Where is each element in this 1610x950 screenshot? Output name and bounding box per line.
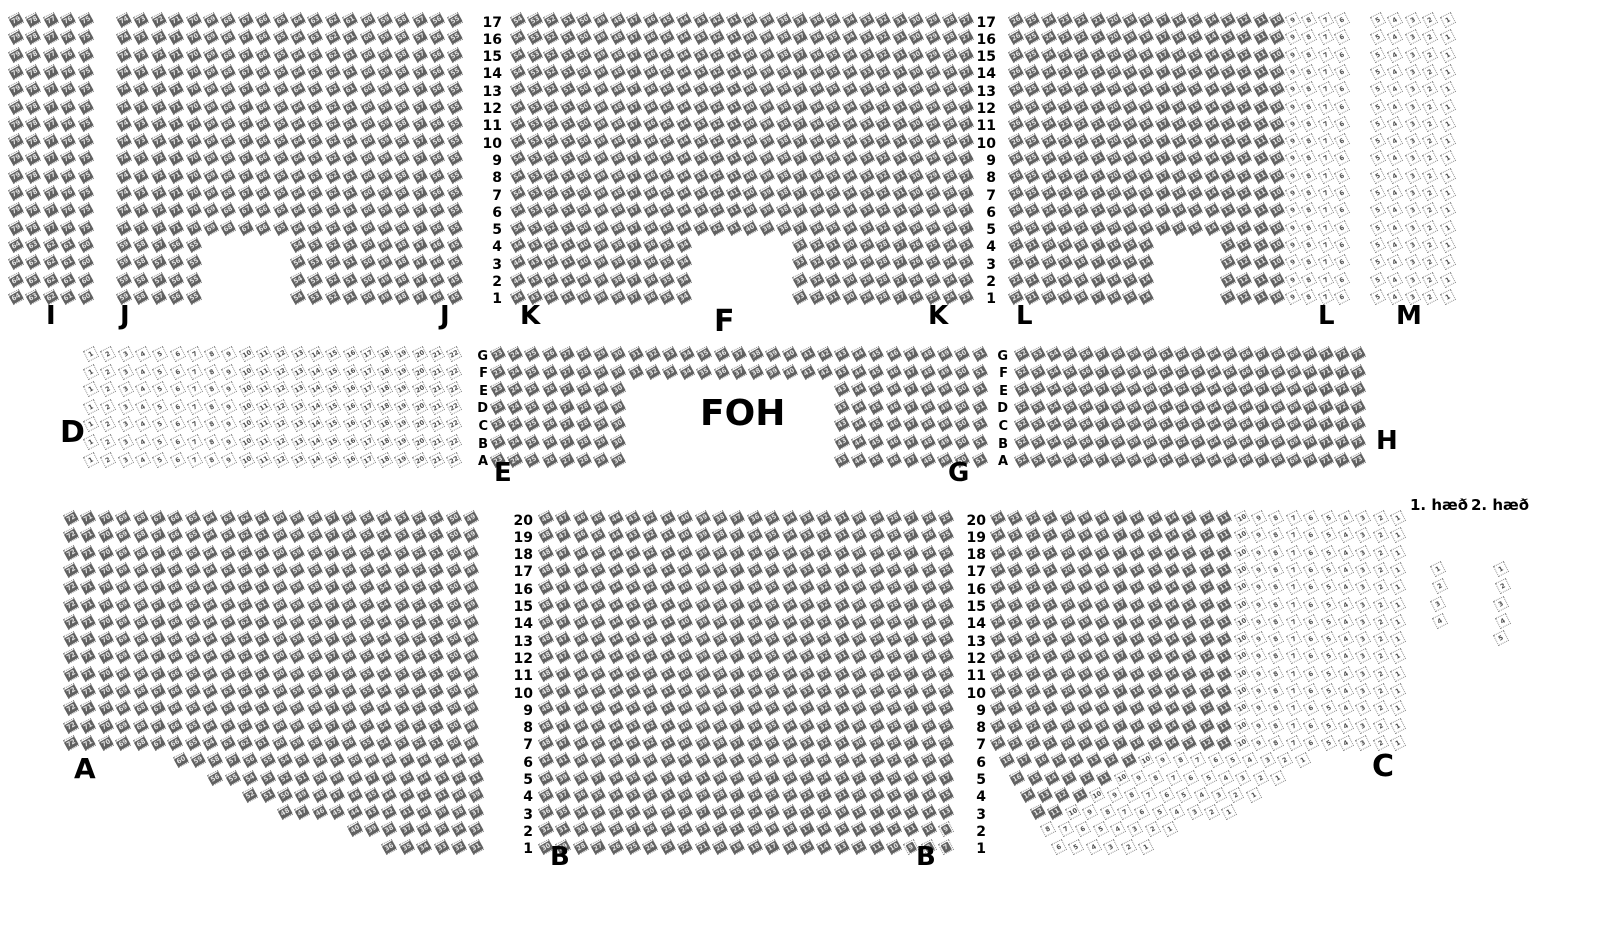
seat-EG[interactable]: 26 (542, 399, 558, 415)
seat-B[interactable]: 31 (834, 614, 850, 630)
seat-K[interactable]: 38 (776, 64, 792, 80)
seat-C[interactable]: 10 (1234, 666, 1250, 682)
seat-B[interactable]: 28 (886, 545, 902, 561)
seat-A[interactable]: 50 (446, 648, 462, 664)
seat-J[interactable]: 67 (238, 98, 254, 114)
seat-B[interactable]: 25 (938, 527, 954, 543)
seat-D[interactable]: 2 (100, 346, 116, 362)
seat-K[interactable]: 33 (859, 64, 875, 80)
seat-B[interactable]: 45 (590, 718, 606, 734)
seat-H[interactable]: 70 (1302, 346, 1318, 362)
seat-L[interactable]: 25 (1024, 150, 1040, 166)
seat-J[interactable]: 66 (255, 185, 271, 201)
seat-K[interactable]: 31 (892, 168, 908, 184)
seat-EG[interactable]: 43 (834, 364, 850, 380)
seat-B[interactable]: 45 (590, 527, 606, 543)
seat-H[interactable]: 65 (1222, 452, 1238, 468)
seat-C[interactable]: 2 (1204, 804, 1220, 820)
seat-C[interactable]: 10 (1234, 596, 1250, 612)
seat-I[interactable]: 78 (25, 12, 41, 28)
seat-B[interactable]: 40 (677, 545, 693, 561)
seat-B[interactable]: 41 (660, 527, 676, 543)
seat-I[interactable]: 78 (25, 185, 41, 201)
seat-B[interactable]: 35 (764, 666, 780, 682)
seat-C[interactable]: 17 (1112, 666, 1128, 682)
seat-K[interactable]: 52 (543, 220, 559, 236)
seat-D[interactable]: 19 (394, 381, 410, 397)
seat-A[interactable]: 36 (381, 839, 397, 855)
seat-H[interactable]: 66 (1238, 399, 1254, 415)
seat-A[interactable]: 40 (347, 821, 363, 837)
seat-D[interactable]: 8 (204, 399, 220, 415)
seat-H[interactable]: 67 (1254, 381, 1270, 397)
seat-J[interactable]: 69 (203, 220, 219, 236)
seat-C[interactable]: 3 (1355, 735, 1371, 751)
seat-C[interactable]: 7 (1286, 527, 1302, 543)
seat-A[interactable]: 64 (202, 700, 218, 716)
seat-M[interactable]: 2 (1422, 12, 1438, 28)
seat-C[interactable]: 24 (990, 718, 1006, 734)
seat-K[interactable]: 47 (626, 81, 642, 97)
seat-J[interactable]: 66 (255, 47, 271, 63)
seat-K[interactable]: 50 (576, 47, 592, 63)
seat-L[interactable]: 15 (1187, 98, 1203, 114)
seat-L[interactable]: 21 (1089, 116, 1105, 132)
seat-L[interactable]: 24 (1041, 185, 1057, 201)
seat-I[interactable]: 77 (43, 150, 59, 166)
seat-A[interactable]: 52 (411, 527, 427, 543)
seat-M[interactable]: 5 (1370, 98, 1386, 114)
seat-A[interactable]: 56 (207, 769, 223, 785)
seat-EG[interactable]: 24 (507, 364, 523, 380)
seat-L[interactable]: 10 (1269, 29, 1285, 45)
seat-A[interactable]: 46 (416, 752, 432, 768)
seat-B[interactable]: 31 (695, 769, 711, 785)
seat-I[interactable]: 77 (43, 220, 59, 236)
seat-D[interactable]: 12 (273, 452, 289, 468)
seat-D[interactable]: 1 (83, 381, 99, 397)
seat-A[interactable]: 58 (307, 718, 323, 734)
seat-C[interactable]: 19 (1077, 510, 1093, 526)
seat-L[interactable]: 8 (1301, 168, 1317, 184)
seat-B[interactable]: 25 (729, 804, 745, 820)
seat-B[interactable]: 24 (851, 752, 867, 768)
seat-B[interactable]: 33 (799, 631, 815, 647)
seat-A[interactable]: 50 (446, 735, 462, 751)
seat-A[interactable]: 49 (463, 718, 479, 734)
seat-B[interactable]: 29 (869, 510, 885, 526)
seat-K[interactable]: 36 (809, 116, 825, 132)
seat-B[interactable]: 37 (729, 527, 745, 543)
seat-I[interactable]: 60 (78, 237, 94, 253)
seat-H[interactable]: 55 (1062, 364, 1078, 380)
seat-B[interactable]: 29 (869, 545, 885, 561)
seat-C[interactable]: 8 (1268, 562, 1284, 578)
seat-B[interactable]: 16 (782, 839, 798, 855)
seat-A[interactable]: 70 (98, 545, 114, 561)
seat-C[interactable]: 10 (1234, 631, 1250, 647)
seat-EG[interactable]: 29 (593, 434, 609, 450)
seat-C[interactable]: 20 (1060, 545, 1076, 561)
seat-A[interactable]: 52 (411, 666, 427, 682)
seat-A[interactable]: 62 (237, 614, 253, 630)
seat-C[interactable]: 17 (1112, 631, 1128, 647)
seat-C[interactable]: 6 (1303, 683, 1319, 699)
seat-L[interactable]: 13 (1220, 12, 1236, 28)
seat-H[interactable]: 52 (1014, 399, 1030, 415)
seat-K[interactable]: 38 (776, 202, 792, 218)
seat-L[interactable]: 25 (1024, 116, 1040, 132)
seat-C[interactable]: 24 (990, 527, 1006, 543)
seat-B[interactable]: 44 (608, 510, 624, 526)
seat-C[interactable]: 3 (1260, 752, 1276, 768)
seat-D[interactable]: 18 (377, 346, 393, 362)
seat-A[interactable]: 52 (312, 752, 328, 768)
seat-A[interactable]: 50 (446, 527, 462, 543)
seat-B[interactable]: 32 (816, 510, 832, 526)
seat-C[interactable]: 22 (1025, 648, 1041, 664)
seat-B[interactable]: 40 (573, 752, 589, 768)
seat-C[interactable]: 16 (1009, 769, 1025, 785)
seat-B[interactable]: 32 (642, 787, 658, 803)
seat-J[interactable]: 56 (168, 271, 184, 287)
seat-A[interactable]: 62 (237, 648, 253, 664)
seat-K[interactable]: 31 (892, 47, 908, 63)
seat-H[interactable]: 53 (1030, 346, 1046, 362)
seat-C[interactable]: 15 (1051, 752, 1067, 768)
seat-J[interactable]: 59 (377, 168, 393, 184)
seat-B[interactable]: 25 (938, 666, 954, 682)
seat-J[interactable]: 62 (325, 12, 341, 28)
seat-J[interactable]: 69 (203, 202, 219, 218)
seat-A[interactable]: 54 (376, 683, 392, 699)
seat-B[interactable]: 47 (555, 666, 571, 682)
seat-K[interactable]: 36 (643, 237, 659, 253)
seat-B[interactable]: 26 (921, 631, 937, 647)
seat-C[interactable]: 12 (1199, 666, 1215, 682)
seat-B[interactable]: 35 (764, 648, 780, 664)
seat-H[interactable]: 55 (1062, 434, 1078, 450)
seat-L[interactable]: 23 (1057, 168, 1073, 184)
seat-B[interactable]: 29 (869, 579, 885, 595)
seat-A[interactable]: 62 (237, 527, 253, 543)
seat-C[interactable]: 22 (1025, 596, 1041, 612)
seat-C[interactable]: 15 (1147, 718, 1163, 734)
seat-L[interactable]: 16 (1171, 81, 1187, 97)
seat-K[interactable]: 30 (908, 116, 924, 132)
seat-L[interactable]: 11 (1252, 64, 1268, 80)
seat-J[interactable]: 74 (116, 150, 132, 166)
seat-H[interactable]: 64 (1206, 399, 1222, 415)
seat-I[interactable]: 60 (78, 289, 94, 305)
seat-C[interactable]: 8 (1148, 769, 1164, 785)
seat-A[interactable]: 53 (294, 752, 310, 768)
seat-C[interactable]: 3 (1355, 527, 1371, 543)
seat-K[interactable]: 42 (543, 271, 559, 287)
seat-B[interactable]: 48 (538, 614, 554, 630)
seat-B[interactable]: 46 (573, 631, 589, 647)
seat-A[interactable]: 67 (150, 614, 166, 630)
seat-EG[interactable]: 36 (714, 364, 730, 380)
seat-B[interactable]: 31 (834, 596, 850, 612)
seat-J[interactable]: 49 (377, 289, 393, 305)
seat-K[interactable]: 33 (859, 185, 875, 201)
seat-C[interactable]: 3 (1355, 631, 1371, 647)
seat-D[interactable]: 17 (360, 364, 376, 380)
seat-K[interactable]: 39 (759, 64, 775, 80)
seat-EG[interactable]: 27 (559, 381, 575, 397)
seat-A[interactable]: 56 (341, 666, 357, 682)
seat-A[interactable]: 59 (289, 510, 305, 526)
seat-K[interactable]: 49 (593, 81, 609, 97)
seat-K[interactable]: 26 (908, 254, 924, 270)
seat-L[interactable]: 17 (1089, 254, 1105, 270)
seat-D[interactable]: 20 (412, 381, 428, 397)
seat-J[interactable]: 61 (342, 150, 358, 166)
seat-B[interactable]: 30 (677, 787, 693, 803)
seat-B[interactable]: 25 (938, 735, 954, 751)
seat-B[interactable]: 34 (782, 700, 798, 716)
seat-K[interactable]: 40 (742, 29, 758, 45)
seat-EG[interactable]: 44 (851, 434, 867, 450)
seat-H[interactable]: 69 (1286, 399, 1302, 415)
seat-B[interactable]: 34 (782, 735, 798, 751)
seat-H[interactable]: 73 (1350, 399, 1366, 415)
seat-B[interactable]: 36 (747, 579, 763, 595)
seat-B[interactable]: 39 (695, 596, 711, 612)
seat-H[interactable]: 57 (1094, 416, 1110, 432)
seat-B[interactable]: 21 (903, 752, 919, 768)
seat-A[interactable]: 62 (237, 683, 253, 699)
seat-L[interactable]: 9 (1285, 12, 1301, 28)
seat-A[interactable]: 56 (341, 545, 357, 561)
seat-I[interactable]: 61 (60, 271, 76, 287)
seat-C[interactable]: 5 (1321, 718, 1337, 734)
seat-C[interactable]: 4 (1338, 562, 1354, 578)
seat-B[interactable]: 39 (695, 510, 711, 526)
seat-A[interactable]: 53 (394, 700, 410, 716)
seat-B[interactable]: 32 (816, 648, 832, 664)
seat-L[interactable]: 25 (1024, 29, 1040, 45)
seat-C[interactable]: 18 (1094, 614, 1110, 630)
seat-D[interactable]: 16 (342, 381, 358, 397)
seat-C[interactable]: 1 (1390, 700, 1406, 716)
seat-D[interactable]: 5 (152, 346, 168, 362)
seat-C[interactable]: 2 (1373, 562, 1389, 578)
seat-EG[interactable]: 45 (868, 364, 884, 380)
seat-K[interactable]: 43 (693, 168, 709, 184)
seat-K[interactable]: 51 (560, 202, 576, 218)
seat-EG[interactable]: 25 (524, 346, 540, 362)
seat-J[interactable]: 59 (116, 254, 132, 270)
seat-A[interactable]: 68 (133, 614, 149, 630)
seat-J[interactable]: 45 (447, 271, 463, 287)
seat-A[interactable]: 72 (63, 631, 79, 647)
seat-EG[interactable]: 44 (851, 416, 867, 432)
seat-C[interactable]: 2 (1145, 821, 1161, 837)
seat-L[interactable]: 8 (1301, 220, 1317, 236)
seat-A[interactable]: 54 (376, 631, 392, 647)
seat-L[interactable]: 8 (1301, 81, 1317, 97)
seat-B[interactable]: 39 (695, 735, 711, 751)
seat-K[interactable]: 31 (892, 81, 908, 97)
seat-K[interactable]: 50 (576, 98, 592, 114)
seat-I[interactable]: 78 (25, 220, 41, 236)
seat-L[interactable]: 20 (1041, 254, 1057, 270)
seat-J[interactable]: 53 (307, 237, 323, 253)
seat-C[interactable]: 21 (1042, 735, 1058, 751)
seat-J[interactable]: 72 (151, 220, 167, 236)
seat-D[interactable]: 11 (256, 364, 272, 380)
seat-C[interactable]: 11 (1216, 666, 1232, 682)
seat-A[interactable]: 50 (446, 614, 462, 630)
seat-A[interactable]: 67 (150, 718, 166, 734)
seat-A[interactable]: 56 (242, 752, 258, 768)
seat-B[interactable]: 25 (938, 579, 954, 595)
seat-L[interactable]: 6 (1334, 29, 1350, 45)
seat-M[interactable]: 2 (1422, 289, 1438, 305)
seat-K[interactable]: 51 (560, 133, 576, 149)
seat-C[interactable]: 17 (1112, 527, 1128, 543)
seat-A[interactable]: 67 (150, 545, 166, 561)
seat-L[interactable]: 17 (1155, 168, 1171, 184)
seat-C[interactable]: 3 (1355, 718, 1371, 734)
seat-EG[interactable]: 42 (817, 364, 833, 380)
seat-A[interactable]: 70 (98, 562, 114, 578)
seat-J[interactable]: 45 (447, 237, 463, 253)
seat-A[interactable]: 69 (115, 666, 131, 682)
seat-L[interactable]: 6 (1334, 271, 1350, 287)
seat-K[interactable]: 53 (527, 47, 543, 63)
seat-A[interactable]: 71 (80, 735, 96, 751)
seat-K[interactable]: 35 (659, 289, 675, 305)
seat-A[interactable]: 50 (446, 545, 462, 561)
seat-J[interactable]: 58 (133, 254, 149, 270)
seat-C[interactable]: 11 (1216, 527, 1232, 543)
seat-B[interactable]: 31 (834, 735, 850, 751)
seat-J[interactable]: 71 (168, 220, 184, 236)
seat-I[interactable]: 61 (60, 254, 76, 270)
seat-B[interactable]: 43 (625, 683, 641, 699)
seat-K[interactable]: 29 (925, 12, 941, 28)
seat-L[interactable]: 21 (1089, 98, 1105, 114)
seat-B[interactable]: 46 (573, 562, 589, 578)
seat-K[interactable]: 32 (875, 64, 891, 80)
seat-B[interactable]: 30 (573, 821, 589, 837)
seat-M[interactable]: 1 (1440, 47, 1456, 63)
seat-A[interactable]: 51 (294, 769, 310, 785)
seat-C[interactable]: 3 (1187, 804, 1203, 820)
seat-B[interactable]: 29 (869, 596, 885, 612)
seat-I[interactable]: 79 (8, 220, 24, 236)
seat-L[interactable]: 23 (1057, 185, 1073, 201)
seat-B[interactable]: 17 (869, 804, 885, 820)
seat-A[interactable]: 39 (434, 804, 450, 820)
seat-A[interactable]: 60 (272, 579, 288, 595)
seat-A[interactable]: 64 (202, 683, 218, 699)
seat-B[interactable]: 45 (590, 510, 606, 526)
seat-K[interactable]: 29 (859, 237, 875, 253)
seat-L[interactable]: 18 (1138, 220, 1154, 236)
seat-B[interactable]: 29 (869, 562, 885, 578)
seat-D[interactable]: 17 (360, 346, 376, 362)
seat-K[interactable]: 51 (560, 98, 576, 114)
seat-B[interactable]: 46 (573, 545, 589, 561)
seat-C[interactable]: 8 (1268, 735, 1284, 751)
seat-J[interactable]: 68 (220, 202, 236, 218)
seat-C[interactable]: 2 (1120, 839, 1136, 855)
seat-B[interactable]: 47 (555, 579, 571, 595)
seat-J[interactable]: 73 (133, 202, 149, 218)
seat-H[interactable]: 72 (1334, 364, 1350, 380)
seat-EG[interactable]: 27 (559, 452, 575, 468)
seat-B[interactable]: 21 (729, 821, 745, 837)
seat-D[interactable]: 1 (83, 364, 99, 380)
seat-EG[interactable]: 50 (954, 381, 970, 397)
seat-J[interactable]: 59 (377, 150, 393, 166)
seat-D[interactable]: 17 (360, 416, 376, 432)
seat-J[interactable]: 72 (151, 47, 167, 63)
seat-J[interactable]: 72 (151, 185, 167, 201)
seat-H[interactable]: 61 (1158, 381, 1174, 397)
seat-K[interactable]: 42 (709, 133, 725, 149)
seat-EG[interactable]: 28 (576, 416, 592, 432)
seat-K[interactable]: 34 (676, 254, 692, 270)
seat-C[interactable]: 15 (1147, 614, 1163, 630)
seat-B[interactable]: 21 (695, 839, 711, 855)
seat-B[interactable]: 34 (782, 683, 798, 699)
seat-B[interactable]: 16 (816, 821, 832, 837)
seat-J[interactable]: 56 (429, 133, 445, 149)
seat-A[interactable]: 60 (272, 683, 288, 699)
seat-J[interactable]: 62 (325, 81, 341, 97)
seat-L[interactable]: 26 (1008, 98, 1024, 114)
seat-H[interactable]: 52 (1014, 452, 1030, 468)
seat-A[interactable]: 62 (237, 579, 253, 595)
seat-J[interactable]: 46 (429, 271, 445, 287)
seat-J[interactable]: 56 (429, 202, 445, 218)
seat-A[interactable]: 64 (202, 648, 218, 664)
seat-L[interactable]: 7 (1318, 168, 1334, 184)
seat-A[interactable]: 67 (150, 631, 166, 647)
seat-I[interactable]: 75 (78, 81, 94, 97)
seat-L[interactable]: 22 (1073, 12, 1089, 28)
seat-K[interactable]: 39 (593, 254, 609, 270)
seat-B[interactable]: 45 (590, 666, 606, 682)
seat-C[interactable]: 3 (1103, 839, 1119, 855)
seat-C[interactable]: 6 (1303, 631, 1319, 647)
seat-K[interactable]: 39 (759, 12, 775, 28)
seat-A[interactable]: 53 (394, 666, 410, 682)
seat-H[interactable]: 52 (1014, 364, 1030, 380)
seat-J[interactable]: 47 (412, 237, 428, 253)
seat-L[interactable]: 6 (1334, 133, 1350, 149)
seat-J[interactable]: 64 (290, 29, 306, 45)
seat-I[interactable]: 79 (8, 81, 24, 97)
seat-H[interactable]: 61 (1158, 399, 1174, 415)
seat-L[interactable]: 20 (1106, 12, 1122, 28)
seat-L[interactable]: 11 (1252, 133, 1268, 149)
seat-A[interactable]: 33 (468, 821, 484, 837)
seat-C[interactable]: 23 (1007, 735, 1023, 751)
seat-A[interactable]: 71 (80, 631, 96, 647)
seat-K[interactable]: 44 (510, 237, 526, 253)
seat-J[interactable]: 54 (290, 254, 306, 270)
seat-C[interactable]: 15 (1147, 683, 1163, 699)
seat-K[interactable]: 28 (942, 47, 958, 63)
seat-H[interactable]: 57 (1094, 364, 1110, 380)
seat-K[interactable]: 45 (659, 98, 675, 114)
